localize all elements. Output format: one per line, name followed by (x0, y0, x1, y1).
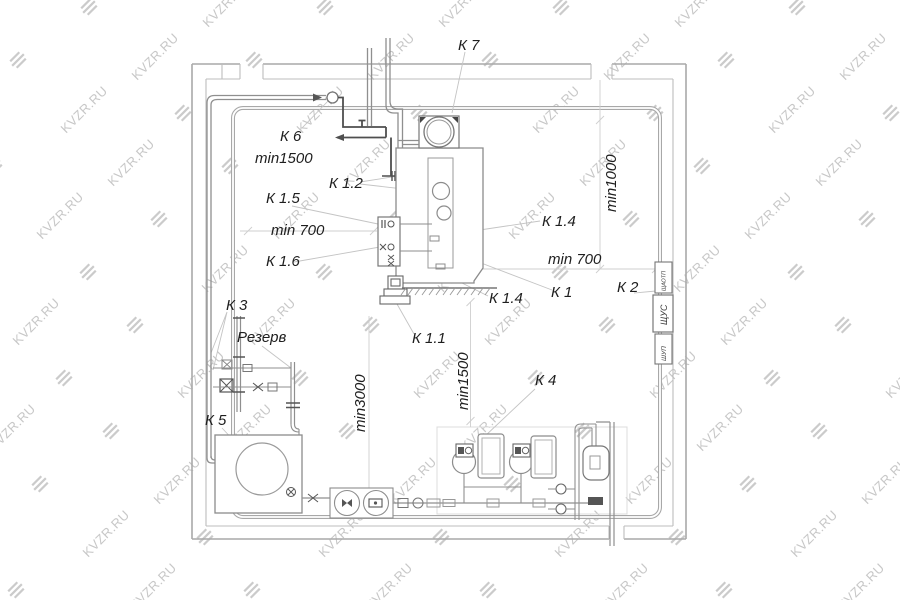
storage-vessel-1 (478, 434, 504, 478)
flue-housing (419, 116, 459, 148)
label-rezerv: Резерв (237, 329, 286, 346)
label-min700-left: min 700 (271, 222, 325, 239)
cabinet-bottom-label: ШУП (661, 346, 668, 361)
label-k7: К 7 (458, 37, 480, 54)
circulation-pump-2 (510, 444, 533, 474)
label-min1000: min1000 (603, 154, 620, 212)
label-min700-right: min 700 (548, 251, 602, 268)
circulation-pump-1 (453, 444, 476, 474)
fuel-tank (215, 435, 330, 513)
expansion-vessel (583, 446, 609, 480)
label-k14-bottom: К 1.4 (489, 290, 523, 307)
label-k4: К 4 (535, 372, 556, 389)
k4-assembly (548, 422, 614, 546)
label-min1500-top: min1500 (255, 150, 313, 167)
label-k3: К 3 (226, 297, 248, 314)
boiler (378, 116, 497, 304)
label-k11: К 1.1 (412, 330, 446, 347)
label-min3000: min3000 (352, 374, 369, 432)
boiler-room-plan: ЩАОТП ЩУС ШУП (0, 0, 900, 600)
cabinet-mid-label: ЩУС (659, 304, 669, 325)
label-k1: К 1 (551, 284, 572, 301)
electrical-cabinets: ЩАОТП ЩУС ШУП (653, 262, 673, 364)
fuel-pump-block (330, 488, 393, 518)
foundation-hatch (401, 288, 490, 295)
label-min1500-mid: min1500 (455, 352, 472, 410)
label-k6: К 6 (280, 128, 302, 145)
label-k16: К 1.6 (266, 253, 301, 270)
gas-supply-pipes (207, 38, 403, 463)
storage-vessel-2 (531, 436, 556, 478)
distribution-pipeline (393, 474, 593, 508)
label-k12: К 1.2 (329, 175, 364, 192)
label-k2: К 2 (617, 279, 639, 296)
drawing-canvas: KVZR.RUKVZR.RUKVZR.RUKVZR.RUKVZR.RUKVZR.… (0, 0, 900, 600)
cabinet-top-label: ЩАОТП (662, 271, 668, 291)
label-k15: К 1.5 (266, 190, 301, 207)
flow-arrow-right (313, 94, 322, 102)
label-k14-top: К 1.4 (542, 213, 576, 230)
gas-meter (327, 92, 338, 103)
flow-arrow-left (335, 134, 344, 141)
label-k5: К 5 (205, 412, 227, 429)
